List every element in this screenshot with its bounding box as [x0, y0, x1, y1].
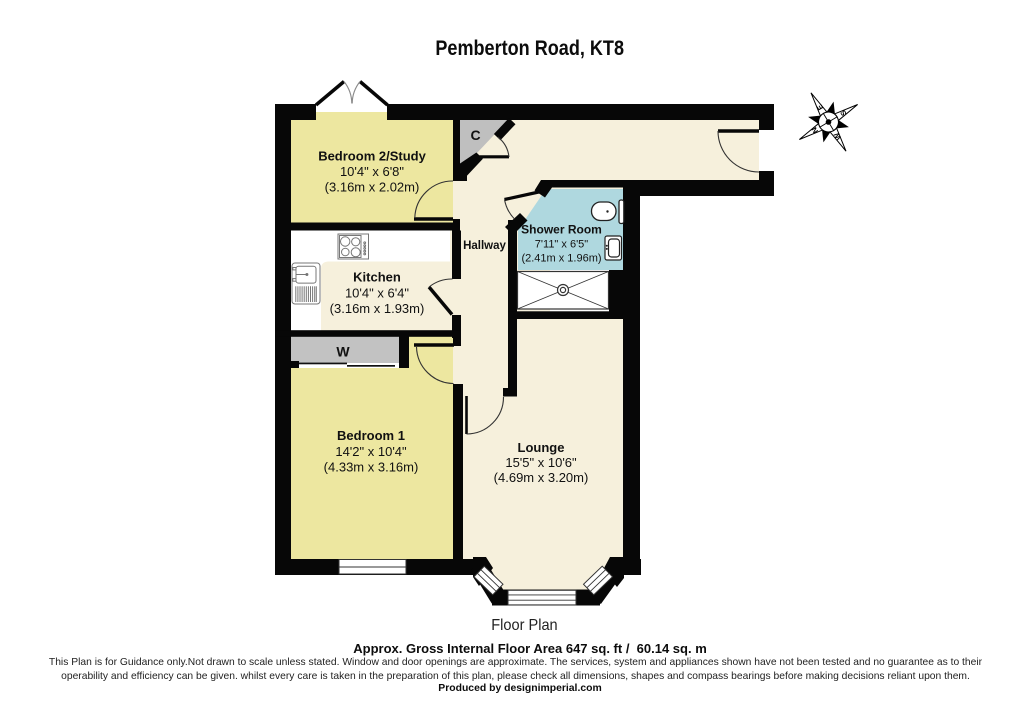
svg-text:Bedroom 2/Study: Bedroom 2/Study — [318, 149, 426, 164]
svg-text:(3.16m x 1.93m): (3.16m x 1.93m) — [330, 301, 425, 316]
svg-text:14'2" x 10'4": 14'2" x 10'4" — [335, 444, 407, 459]
svg-text:10'4" x 6'4": 10'4" x 6'4" — [345, 285, 409, 300]
svg-text:10'4" x 6'8": 10'4" x 6'8" — [340, 164, 404, 179]
svg-text:(4.33m x 3.16m): (4.33m x 3.16m) — [324, 460, 419, 475]
svg-text:(4.69m x 3.20m): (4.69m x 3.20m) — [494, 470, 589, 485]
svg-text:7'11" x 6'5": 7'11" x 6'5" — [535, 238, 588, 250]
svg-text:Kitchen: Kitchen — [353, 269, 401, 284]
svg-text:Shower Room: Shower Room — [521, 223, 602, 237]
svg-text:15'5" x 10'6": 15'5" x 10'6" — [505, 455, 577, 470]
svg-text:Hallway: Hallway — [463, 240, 506, 252]
svg-text:C: C — [470, 127, 480, 143]
svg-text:W: W — [336, 344, 350, 360]
svg-text:(2.41m x 1.96m): (2.41m x 1.96m) — [521, 252, 601, 264]
svg-text:(3.16m x 2.02m): (3.16m x 2.02m) — [325, 180, 420, 195]
svg-text:Bedroom 1: Bedroom 1 — [337, 428, 405, 443]
svg-text:Lounge: Lounge — [518, 440, 565, 455]
